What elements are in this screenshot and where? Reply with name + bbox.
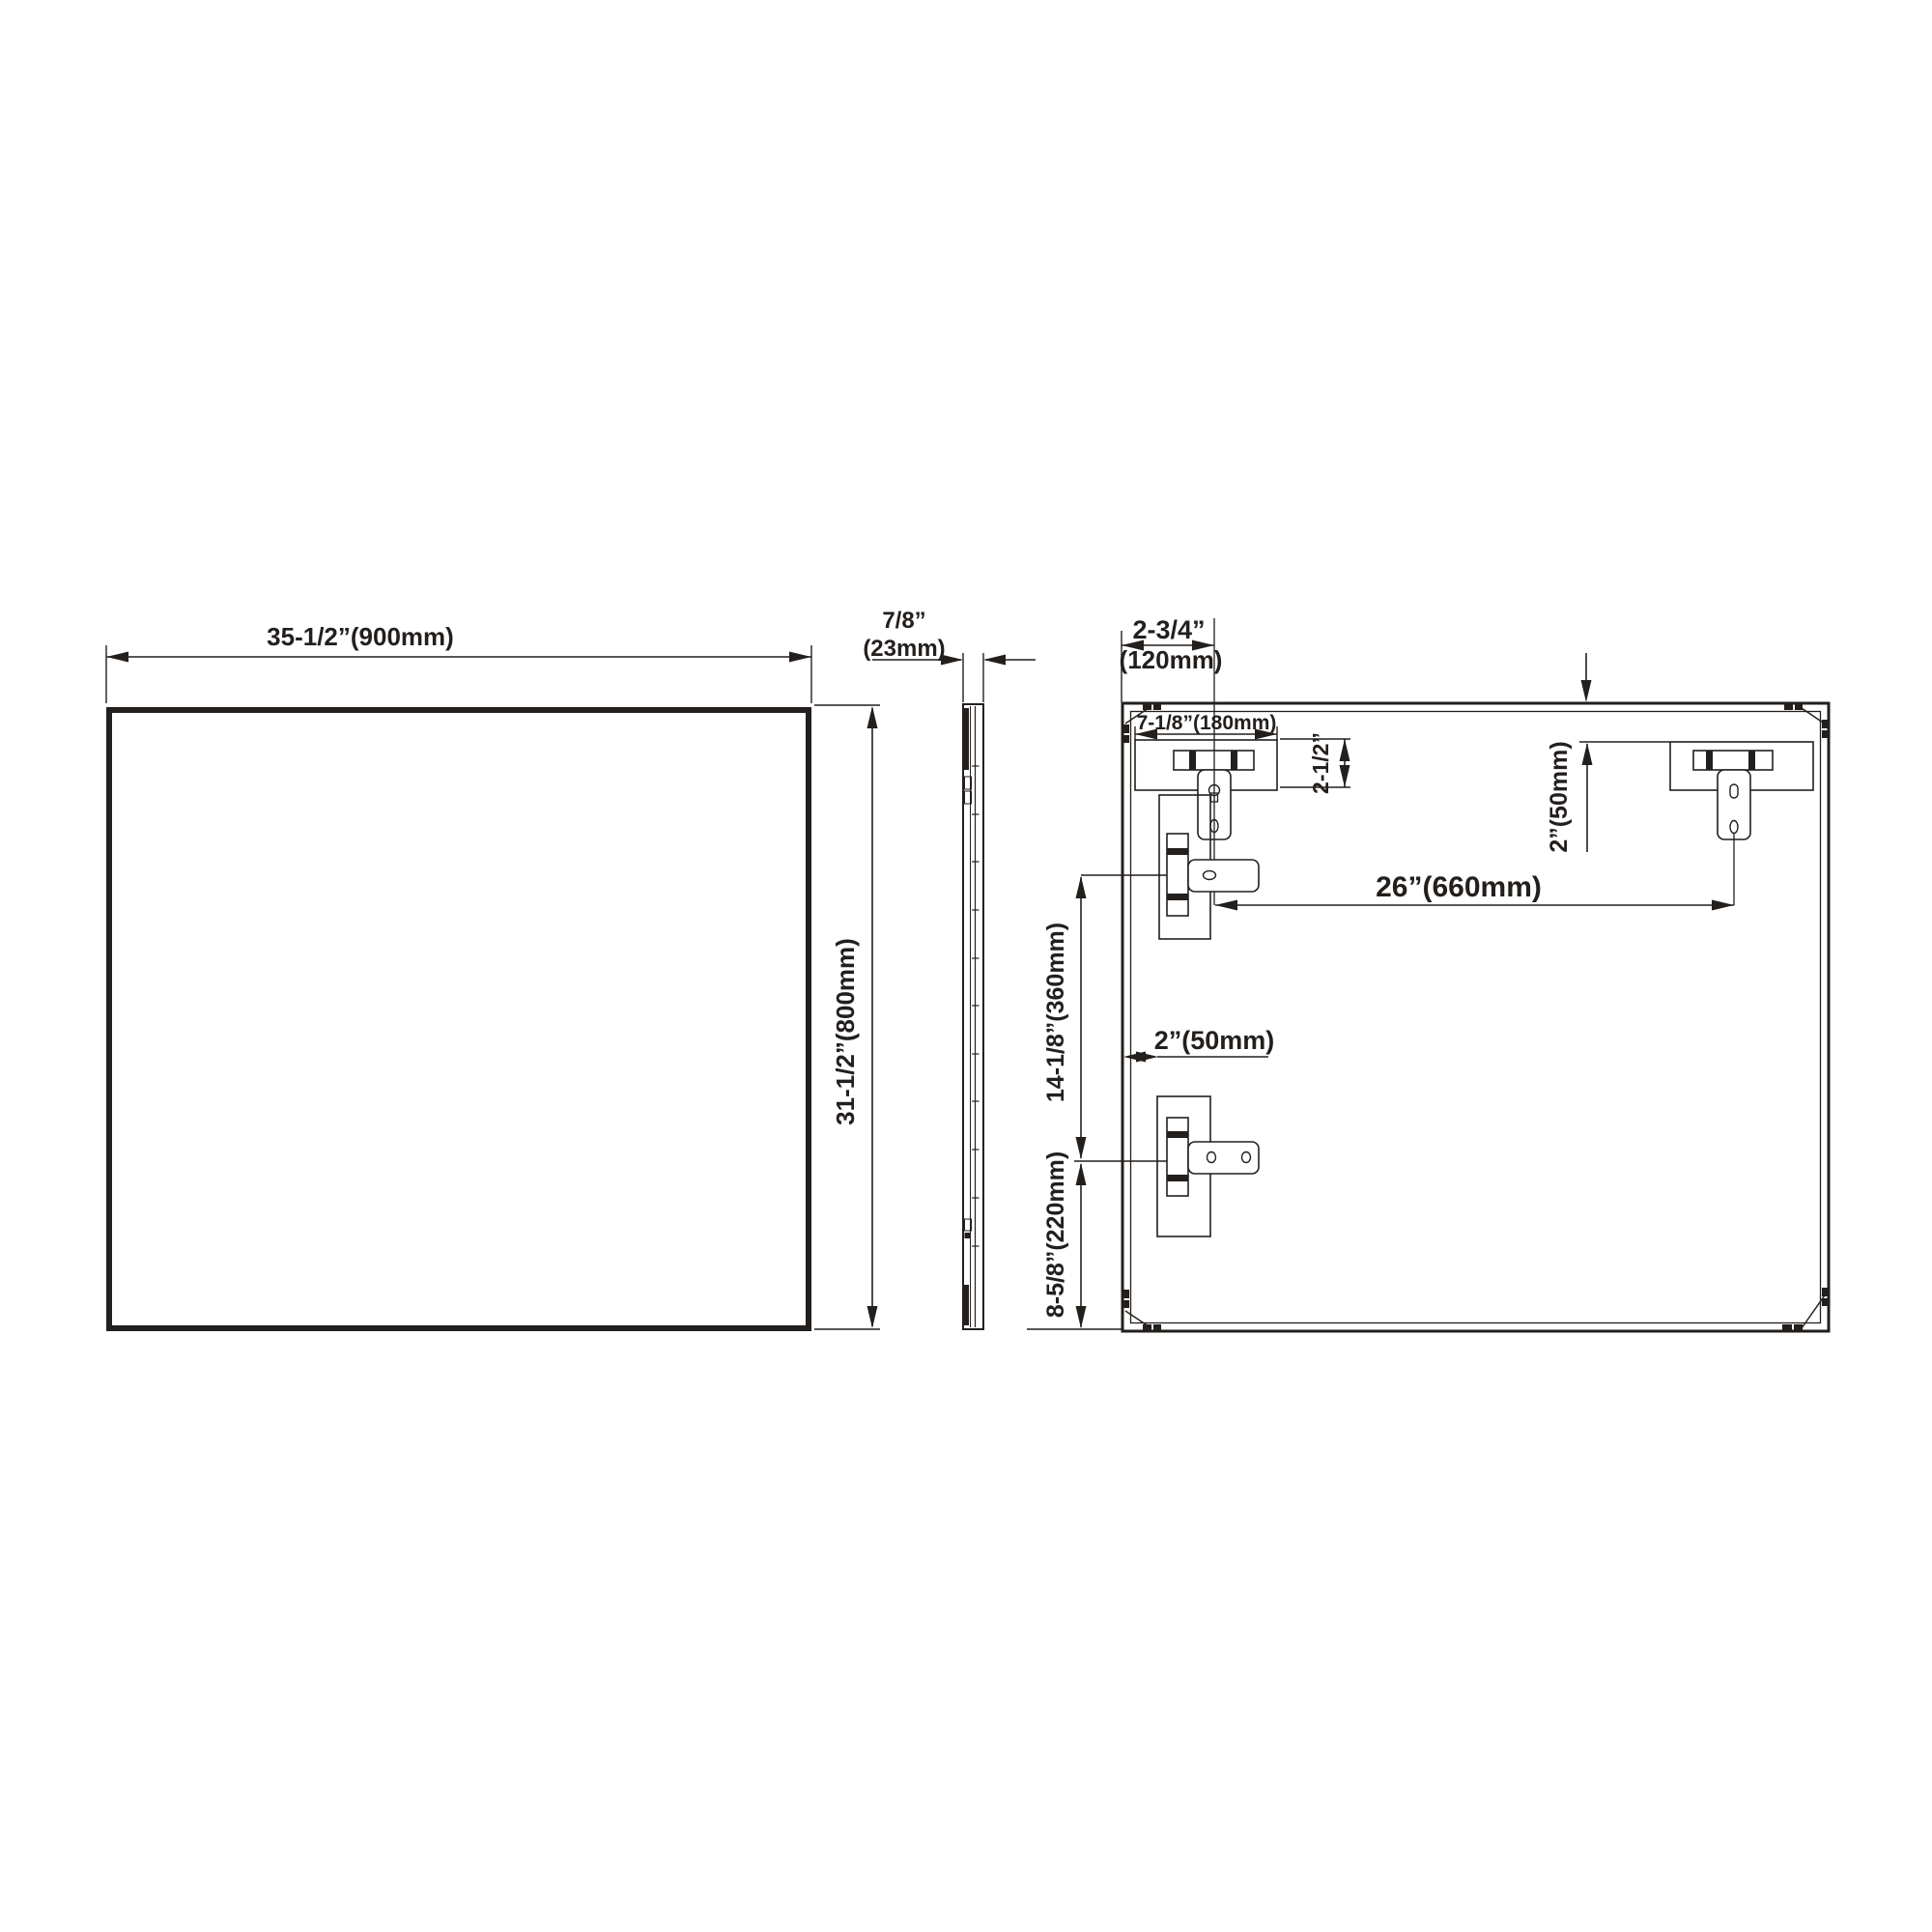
top-gap-dimension: 2”(50mm) (1546, 653, 1670, 853)
front-height-dimension: 31-1/2”(800mm) (814, 705, 880, 1329)
arrowhead-up (1076, 876, 1087, 898)
top-bracket-profile (964, 708, 969, 770)
cleat-width-label: 7-1/8”(180mm) (1137, 712, 1277, 734)
front-view-outline (109, 710, 809, 1328)
side-gap-label: 2”(50mm) (1154, 1026, 1275, 1055)
corner-clip-top-right (1784, 702, 1830, 738)
keyhole-plate (1188, 1142, 1259, 1174)
thickness-label-in: 7/8” (882, 608, 925, 634)
mirror-dimension-drawing: 35-1/2”(900mm) 31-1/2”(800mm) (0, 0, 1932, 1932)
bracket-spacing-label: 26”(660mm) (1376, 871, 1542, 903)
cleat-height-dimension: 2-1/2” (1280, 732, 1350, 794)
cleat-end-cap (1748, 751, 1755, 770)
cleat-end-cap (1167, 848, 1188, 855)
arrowhead-down (867, 1306, 878, 1328)
thickness-dimension: 7/8” (23mm) (863, 608, 1036, 702)
front-view: 35-1/2”(900mm) 31-1/2”(800mm) (106, 622, 880, 1329)
back-view: 7-1/8”(180mm) 2-1/2” 2-3/4” (120mm) (1027, 615, 1830, 1332)
arrowhead-down (1340, 765, 1350, 787)
bracket-clip-detail (965, 1233, 971, 1238)
arrowhead-left (106, 652, 128, 663)
cleat-end-cap (1167, 1175, 1188, 1181)
arrowhead-up (1076, 1163, 1087, 1185)
arrowhead-right (1712, 900, 1734, 911)
arrowhead-left (983, 655, 1006, 666)
corner-offset-label-mm: (120mm) (1120, 645, 1223, 674)
arrowhead-right (789, 652, 811, 663)
wall-cleat-bracket-lower-left (1157, 1096, 1259, 1236)
arrowhead-down (1076, 1306, 1087, 1328)
cleat-bar (1167, 1118, 1188, 1196)
arrowhead-down (1581, 680, 1592, 702)
cleat-bar (1167, 834, 1188, 916)
front-width-dimension: 35-1/2”(900mm) (106, 622, 811, 703)
keyhole-plate (1188, 860, 1259, 892)
cleat-end-cap (1231, 751, 1237, 770)
vertical-spacing-dimension: 14-1/8”(360mm) (1042, 875, 1167, 1159)
cleat-end-cap (1167, 1131, 1188, 1138)
bottom-offset-label: 8-5/8”(220mm) (1042, 1151, 1069, 1318)
arrowhead-down (1076, 1137, 1087, 1159)
keyhole-plate (1718, 770, 1750, 839)
bottom-offset-dimension: 8-5/8”(220mm) (1027, 1151, 1167, 1329)
wall-cleat-bracket-top-right (1670, 742, 1813, 905)
corner-clip-bottom-left (1122, 1290, 1161, 1332)
side-view: 7/8” (23mm) (863, 608, 1036, 1329)
arrowhead-up (1582, 743, 1593, 765)
cleat-end-cap (1189, 751, 1196, 770)
technical-drawing-page: 35-1/2”(900mm) 31-1/2”(800mm) (0, 0, 1932, 1932)
bracket-spacing-dimension: 26”(660mm) (1215, 871, 1734, 911)
wall-cleat-bracket-top-left (1135, 740, 1277, 839)
cleat-height-label: 2-1/2” (1308, 732, 1333, 794)
front-height-label: 31-1/2”(800mm) (831, 938, 860, 1125)
cleat-width-dimension: 7-1/8”(180mm) (1135, 712, 1277, 740)
corner-offset-label-in: 2-3/4” (1132, 615, 1205, 644)
top-gap-label: 2”(50mm) (1546, 741, 1573, 852)
arrowhead-up (867, 706, 878, 728)
arrowhead-up (1340, 739, 1350, 761)
bottom-bracket-profile (964, 1285, 969, 1325)
corner-clip-bottom-right (1782, 1288, 1830, 1332)
thickness-label-mm: (23mm) (863, 636, 945, 662)
vertical-spacing-label: 14-1/8”(360mm) (1042, 923, 1069, 1102)
arrowhead-left (1215, 900, 1237, 911)
cleat-end-cap (1706, 751, 1713, 770)
cleat-bar (1693, 751, 1773, 770)
corner-offset-dimension: 2-3/4” (120mm) (1120, 615, 1223, 702)
cleat-end-cap (1167, 894, 1188, 900)
side-gap-dimension: 2”(50mm) (1123, 1026, 1274, 1063)
front-width-label: 35-1/2”(900mm) (267, 622, 454, 651)
